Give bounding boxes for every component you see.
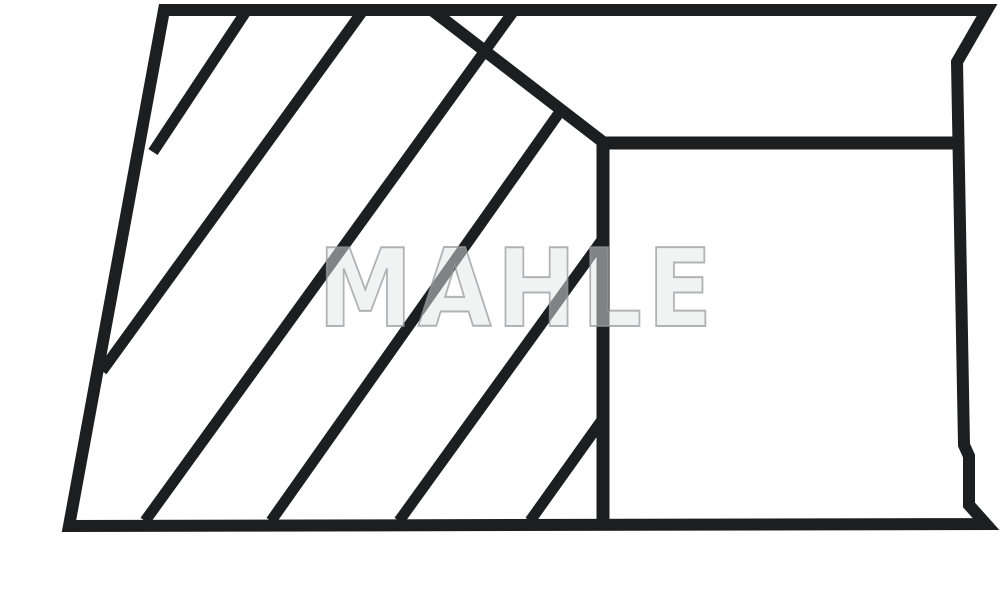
hatch-line-2 (102, 12, 362, 371)
hatch-line-5 (399, 240, 602, 521)
hatch-line-1 (153, 13, 245, 152)
cross-section-svg (0, 0, 1000, 592)
hatch-line-4 (271, 113, 559, 521)
hatch-line-6 (530, 420, 602, 521)
step-diagonal-line (433, 11, 603, 142)
page: MAHLE (0, 0, 1000, 592)
